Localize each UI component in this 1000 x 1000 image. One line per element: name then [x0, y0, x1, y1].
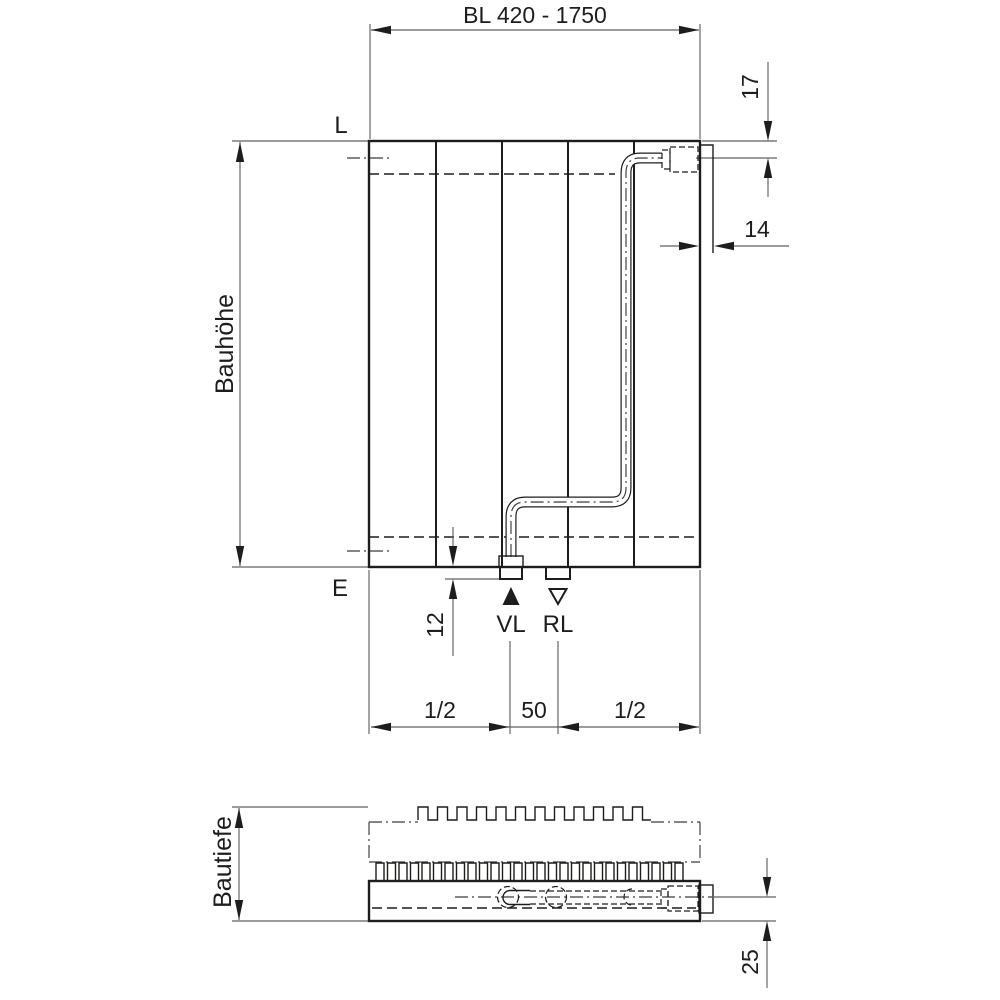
panel-hidden-detail [372, 885, 713, 913]
arrow-up-icon [764, 158, 772, 178]
rl-stub [546, 567, 570, 579]
phantom-panel-outline [369, 822, 700, 862]
bottom-extension-lines [232, 807, 776, 921]
dim-half-right-label: 1/2 [614, 697, 646, 723]
bl-width-label: BL 420 - 1750 [463, 2, 607, 28]
internal-riser-pipe [511, 158, 662, 557]
vl-supply-triangle-icon [503, 587, 520, 605]
bl-width-dimension: BL 420 - 1750 [371, 2, 699, 34]
fins-outer-row [418, 807, 651, 820]
bautiefe-dimension: Bautiefe [209, 808, 243, 920]
arrow-right-icon [679, 26, 699, 34]
dim-50-label: 50 [521, 697, 547, 723]
rl-label: RL [543, 611, 574, 638]
dim-25: 25 [737, 858, 771, 988]
vl-stub [500, 567, 522, 579]
convection-fins [376, 807, 694, 881]
arrow-up-icon [763, 921, 771, 941]
bottom-chain-dimension: 1/2 50 1/2 [371, 697, 699, 731]
arrow-left-icon [371, 723, 391, 731]
level-label-top: L [334, 112, 347, 139]
arrow-up-icon [236, 142, 244, 162]
arrow-right-icon [679, 723, 699, 731]
bottom-view: Bautiefe [209, 807, 776, 988]
arrow-down-icon [763, 877, 771, 897]
arrow-left-icon [371, 26, 391, 34]
rl-return-triangle-icon [550, 589, 567, 604]
dim-14-label: 14 [744, 216, 770, 242]
fins-inner-row [376, 863, 694, 881]
arrow-down-icon [764, 121, 772, 141]
flow-markers: VL RL [496, 587, 573, 638]
arrow-left-icon [559, 723, 579, 731]
panel-body [369, 881, 700, 921]
dim-12-label: 12 [422, 612, 448, 638]
dim-17: 17 [737, 62, 772, 197]
side-tab [700, 145, 713, 253]
bauhoehe-dimension: Bauhöhe [211, 142, 244, 566]
bauhoehe-label: Bauhöhe [211, 294, 239, 394]
level-label-bottom: E [332, 575, 348, 602]
arrow-right-icon [679, 242, 699, 250]
top-connection-fitting [662, 145, 713, 253]
arrow-down-icon [449, 546, 457, 566]
dim-17-label: 17 [737, 74, 763, 100]
hidden-header-lines [347, 158, 698, 551]
dim-14: 14 [660, 216, 789, 250]
arrow-right-icon [489, 723, 509, 731]
arrow-up-icon [449, 579, 457, 599]
dim-25-label: 25 [737, 949, 763, 975]
arrow-left-icon [714, 242, 734, 250]
side-fitting-hidden [668, 886, 698, 911]
arrow-down-icon [236, 546, 244, 566]
bautiefe-label: Bautiefe [209, 816, 237, 908]
dim-half-left-label: 1/2 [424, 697, 456, 723]
front-view: BL 420 - 1750 Bauhöhe L E [211, 2, 789, 734]
technical-drawing-page: BL 420 - 1750 Bauhöhe L E [0, 0, 1000, 1000]
radiator-technical-drawing: BL 420 - 1750 Bauhöhe L E [0, 0, 1000, 1000]
dim-12: 12 [422, 527, 457, 656]
vl-label: VL [496, 611, 525, 638]
